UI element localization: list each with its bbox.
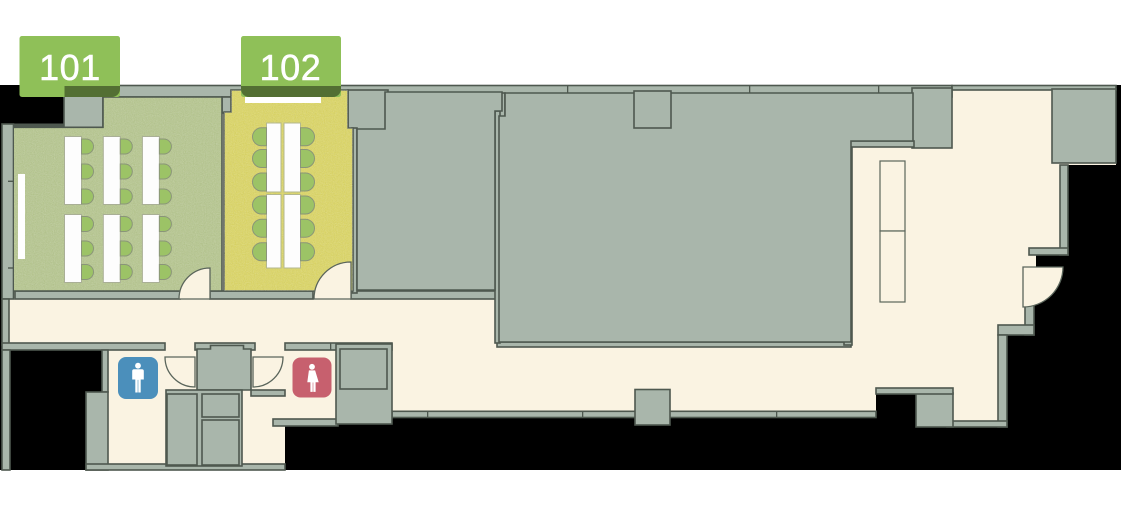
svg-text:102: 102 [260, 47, 322, 88]
svg-text:101: 101 [39, 47, 101, 88]
